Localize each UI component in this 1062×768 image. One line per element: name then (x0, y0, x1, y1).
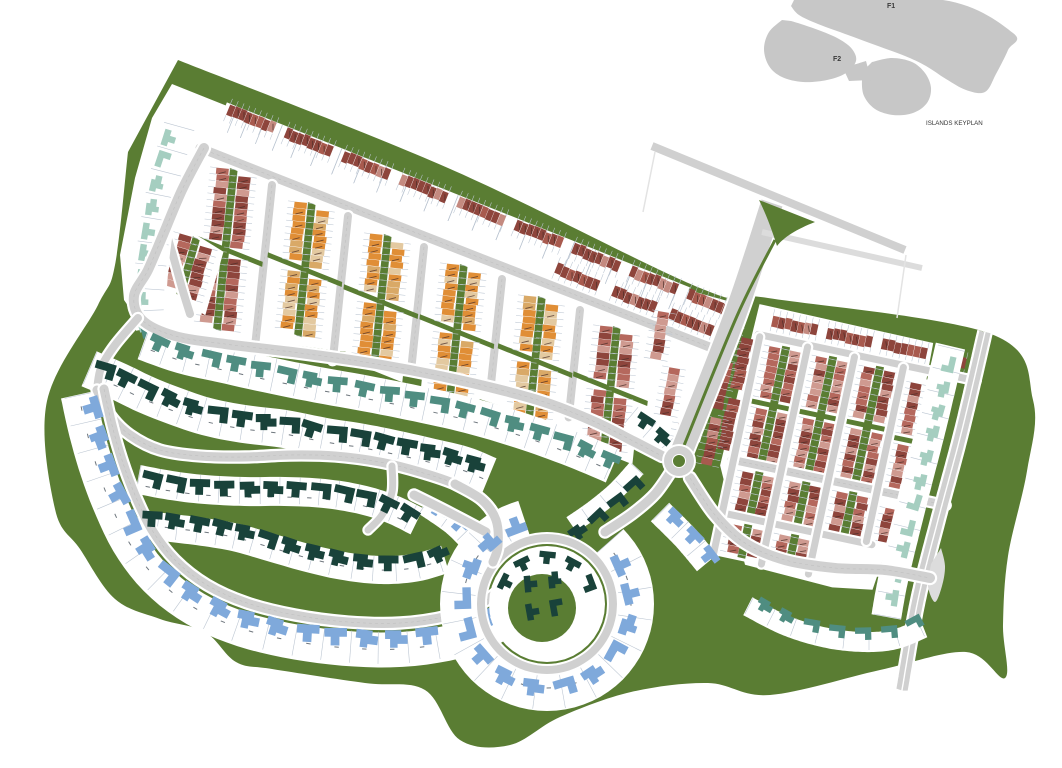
svg-text:F1: F1 (887, 3, 895, 10)
svg-text:F2: F2 (833, 56, 841, 63)
svg-text:ISLANDS KEYPLAN: ISLANDS KEYPLAN (926, 120, 983, 127)
